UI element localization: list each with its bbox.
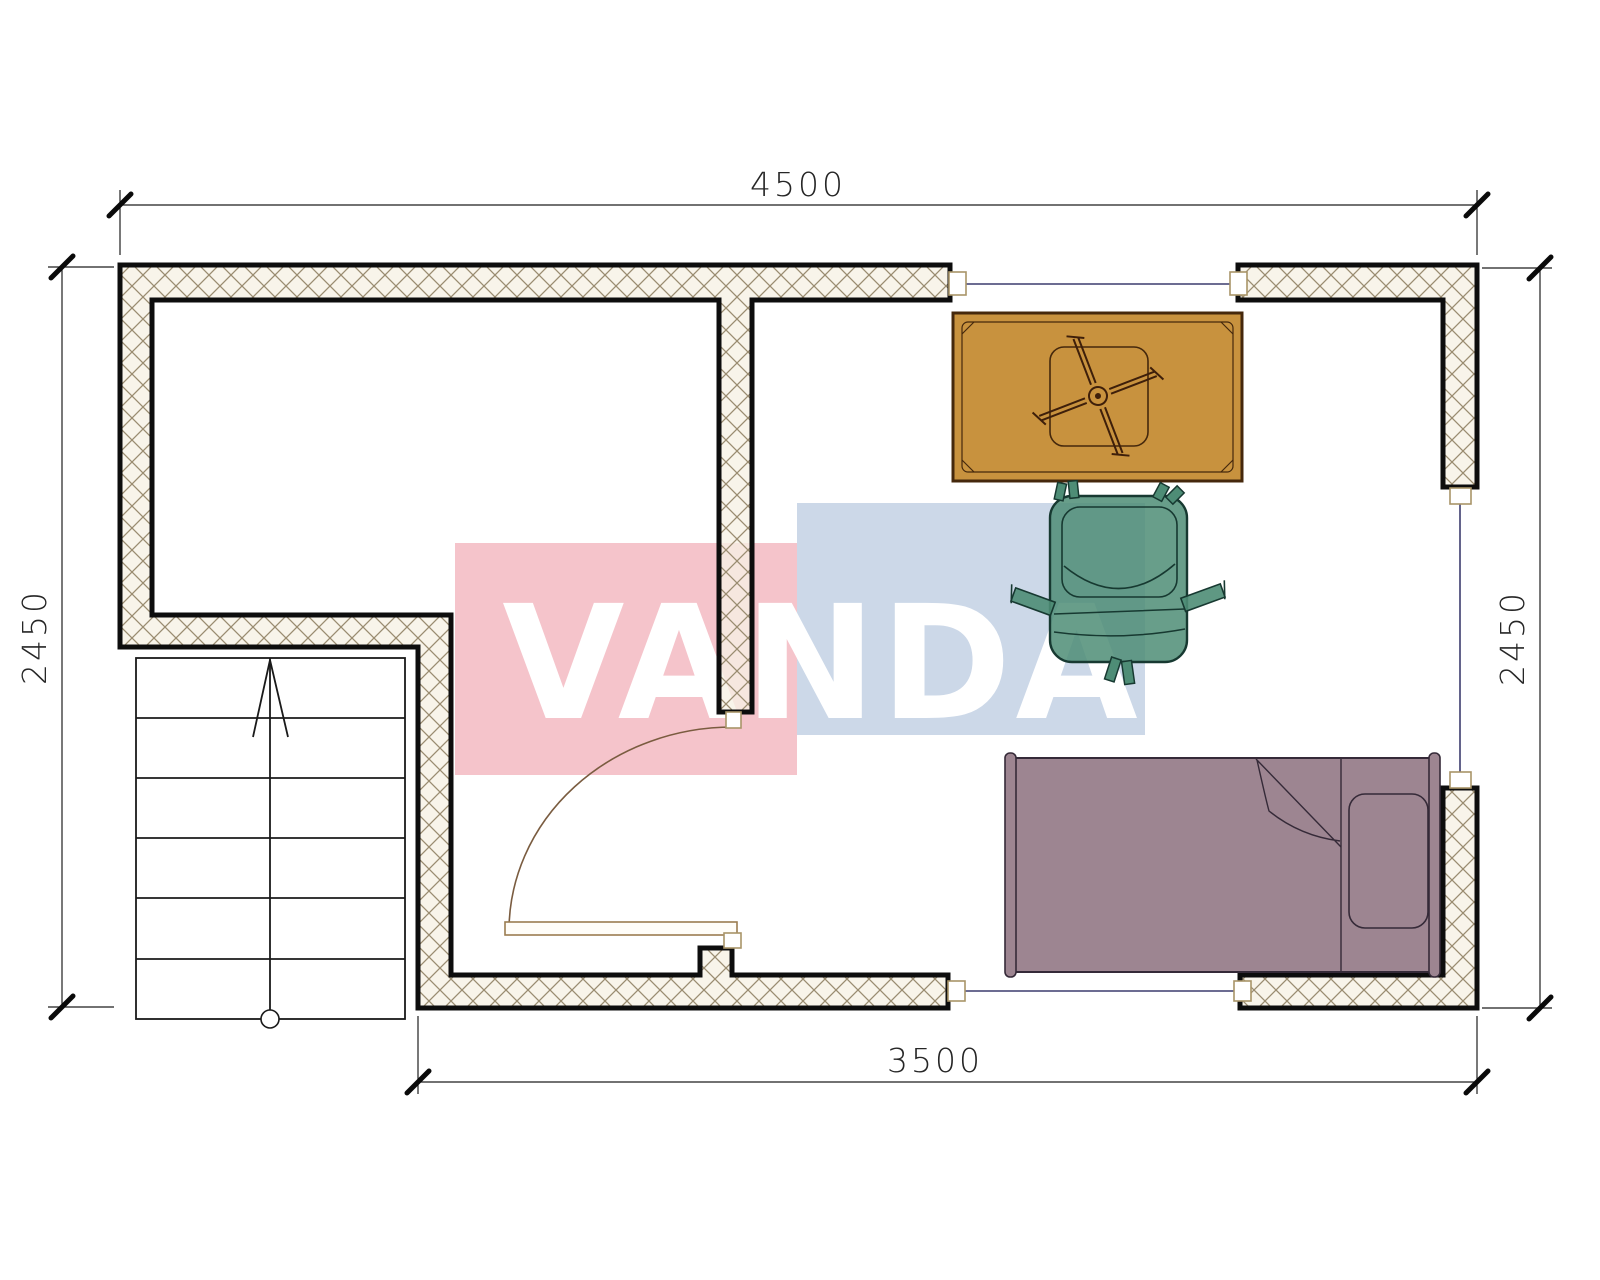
dimension-label-left: 2450: [15, 589, 54, 685]
window-marker: [948, 981, 965, 1001]
dimension-bottom: 3500: [407, 1016, 1488, 1094]
door-leaf: [505, 922, 737, 935]
dimension-label-right: 2450: [1493, 590, 1532, 686]
bed-headboard: [1429, 753, 1440, 977]
staircase: [136, 658, 405, 1028]
window-marker: [1234, 981, 1251, 1001]
window-marker: [949, 272, 966, 295]
window-marker: [1450, 772, 1471, 788]
floor-plan-canvas: VANDA: [0, 0, 1600, 1280]
dimension-top: 4500: [109, 165, 1488, 255]
bed-footboard: [1005, 753, 1016, 977]
window-marker: [1450, 488, 1471, 504]
stairs-start-marker: [261, 1010, 279, 1028]
kotatsu-table: [953, 309, 1242, 482]
door-frame-marker: [726, 712, 741, 728]
dimension-label-top: 4500: [750, 165, 846, 204]
single-bed: [1005, 753, 1440, 977]
floor-plan-page: VANDA: [0, 0, 1600, 1280]
chair-body: [1050, 496, 1187, 662]
dimension-right: 2450: [1482, 257, 1552, 1019]
dimension-left: 2450: [15, 256, 114, 1018]
watermark: VANDA: [455, 503, 1145, 775]
bed-mattress: [1012, 758, 1436, 972]
wall-top-right: [1238, 265, 1477, 487]
door-frame-marker: [724, 933, 741, 948]
dimension-label-bottom: 3500: [887, 1041, 983, 1080]
window-marker: [1230, 272, 1247, 295]
